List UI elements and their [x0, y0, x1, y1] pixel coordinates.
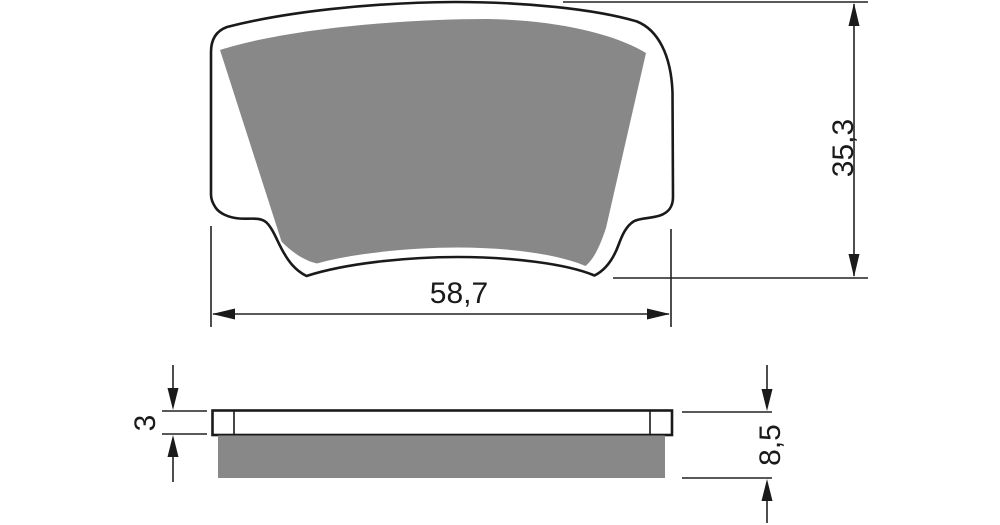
arrowhead-up: [762, 479, 773, 501]
friction-material-profile: [218, 436, 665, 479]
arrowhead-down: [849, 254, 860, 277]
side-view: [213, 411, 673, 479]
brake-pad-technical-drawing: 58,7 35,3 3: [0, 0, 1000, 525]
dimension-backplate-thickness: [162, 365, 207, 482]
drawing-canvas: 58,7 35,3 3: [0, 0, 1000, 525]
total-thickness-label: 8,5: [754, 424, 787, 466]
arrowhead-up: [849, 3, 860, 26]
top-view: [211, 2, 673, 276]
arrowhead-down: [762, 389, 773, 411]
arrowhead-down: [168, 388, 179, 410]
arrowhead-right: [647, 309, 670, 320]
arrowhead-left: [212, 309, 235, 320]
arrowhead-up: [168, 435, 179, 457]
width-dimension-label: 58,7: [430, 277, 488, 310]
backplate-profile: [213, 411, 673, 436]
friction-material-top: [220, 19, 646, 266]
backplate-thickness-label: 3: [129, 415, 162, 432]
height-dimension-label: 35,3: [827, 119, 860, 177]
